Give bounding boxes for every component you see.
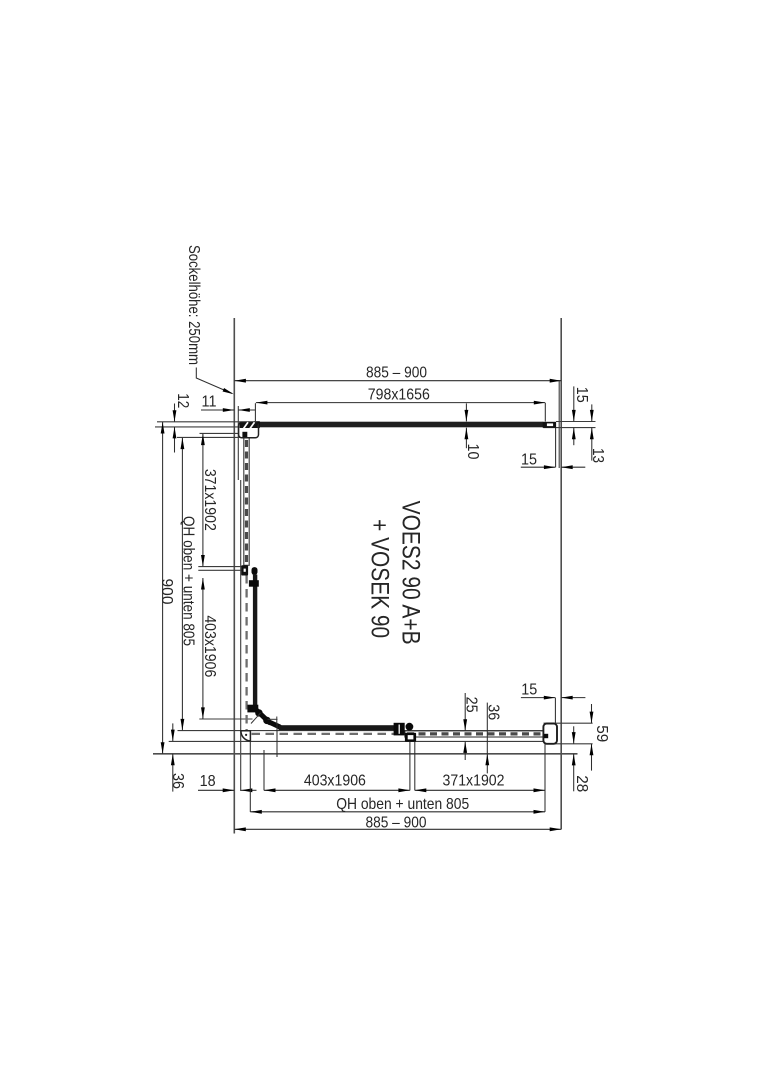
svg-text:25: 25 — [463, 697, 480, 713]
svg-text:Sockelhöhe: 250mm: Sockelhöhe: 250mm — [185, 245, 202, 365]
svg-text:15: 15 — [521, 451, 537, 468]
svg-text:QH oben + unten 805: QH oben + unten 805 — [180, 516, 197, 646]
svg-text:10: 10 — [464, 444, 481, 460]
svg-text:885 – 900: 885 – 900 — [366, 364, 427, 381]
svg-text:VOES2 90 A+B: VOES2 90 A+B — [397, 501, 425, 645]
svg-text:885 – 900: 885 – 900 — [366, 815, 427, 832]
svg-text:403x1906: 403x1906 — [201, 615, 218, 677]
svg-text:59: 59 — [593, 725, 610, 742]
svg-text:QH oben + unten 805: QH oben + unten 805 — [336, 796, 469, 813]
svg-text:15: 15 — [521, 681, 537, 698]
svg-text:403x1906: 403x1906 — [304, 773, 366, 790]
svg-text:18: 18 — [200, 773, 216, 790]
svg-text:28: 28 — [573, 775, 590, 792]
svg-text:371x1902: 371x1902 — [443, 773, 505, 790]
svg-text:15: 15 — [573, 387, 590, 403]
svg-text:+ VOSEK 90: + VOSEK 90 — [366, 519, 394, 638]
svg-text:12: 12 — [174, 393, 191, 408]
svg-text:13: 13 — [589, 448, 606, 463]
svg-text:798x1656: 798x1656 — [368, 386, 430, 403]
svg-text:11: 11 — [202, 394, 217, 411]
svg-text:371x1902: 371x1902 — [201, 469, 218, 531]
svg-text:36: 36 — [485, 704, 502, 720]
svg-text:900: 900 — [158, 579, 175, 605]
svg-text:36: 36 — [169, 773, 186, 789]
